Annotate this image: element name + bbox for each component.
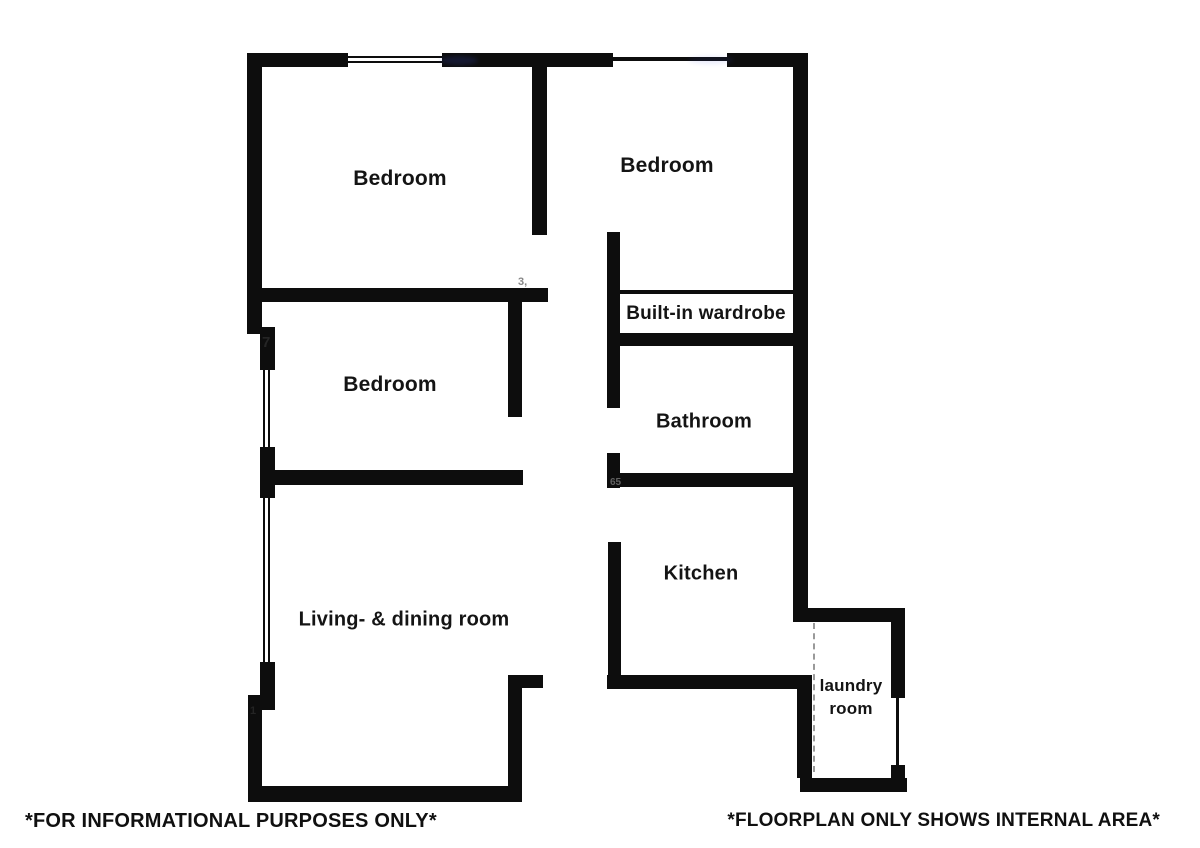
wall [508, 675, 543, 688]
window-pane-line [268, 370, 270, 447]
wall [891, 608, 905, 698]
erased-measurement-remnant: 65 [610, 477, 621, 488]
wall [612, 333, 798, 346]
wall [508, 675, 522, 802]
footer-disclaimer-left: *FOR INFORMATIONAL PURPOSES ONLY* [25, 810, 437, 833]
wall [250, 288, 548, 302]
wall [607, 675, 812, 689]
room-label-bedroom-3: Bedroom [343, 371, 437, 399]
room-label-built-in-wardrobe: Built-in wardrobe [626, 301, 786, 327]
erased-measurement-remnant: 3, [518, 276, 527, 288]
wall [607, 473, 795, 487]
wall [248, 786, 522, 802]
wall [608, 542, 621, 688]
wall [891, 765, 905, 792]
window-v-double [260, 498, 274, 662]
erased-measurement-remnant: 7 [262, 334, 270, 351]
window-pane-line [348, 56, 442, 58]
open-boundary-dashed-line [813, 623, 815, 772]
window-pane-line [263, 370, 265, 447]
window-pane-line [268, 498, 270, 662]
room-label-bathroom: Bathroom [656, 409, 752, 436]
room-label-bedroom-2: Bedroom [620, 152, 714, 180]
wall [532, 55, 547, 235]
window-pane-line [263, 498, 265, 662]
erased-ink-smudge [688, 56, 734, 64]
window-pane-line [896, 698, 899, 765]
window-v-double [260, 370, 274, 447]
footer-disclaimer-right: *FLOORPLAN ONLY SHOWS INTERNAL AREA* [727, 810, 1160, 832]
room-label-kitchen: Kitchen [664, 561, 739, 588]
room-label-living-dining-room: Living- & dining room [299, 607, 510, 634]
wall [247, 53, 348, 67]
wall [508, 300, 522, 417]
room-label-bedroom-1: Bedroom [353, 165, 447, 193]
wall [607, 232, 620, 408]
window-pane-line [348, 61, 442, 63]
window-h-triple [348, 53, 442, 67]
room-label-laundry-room: laundry room [820, 675, 883, 721]
floorplan-canvas: BedroomBedroomBedroomBuilt-in wardrobeBa… [0, 0, 1200, 848]
erased-measurement-remnant: 1 [250, 705, 256, 717]
erased-ink-smudge [440, 56, 478, 65]
window-v-line [891, 698, 905, 765]
wall [793, 608, 905, 622]
wall [260, 470, 523, 485]
wall [797, 675, 812, 778]
wall [618, 290, 793, 294]
